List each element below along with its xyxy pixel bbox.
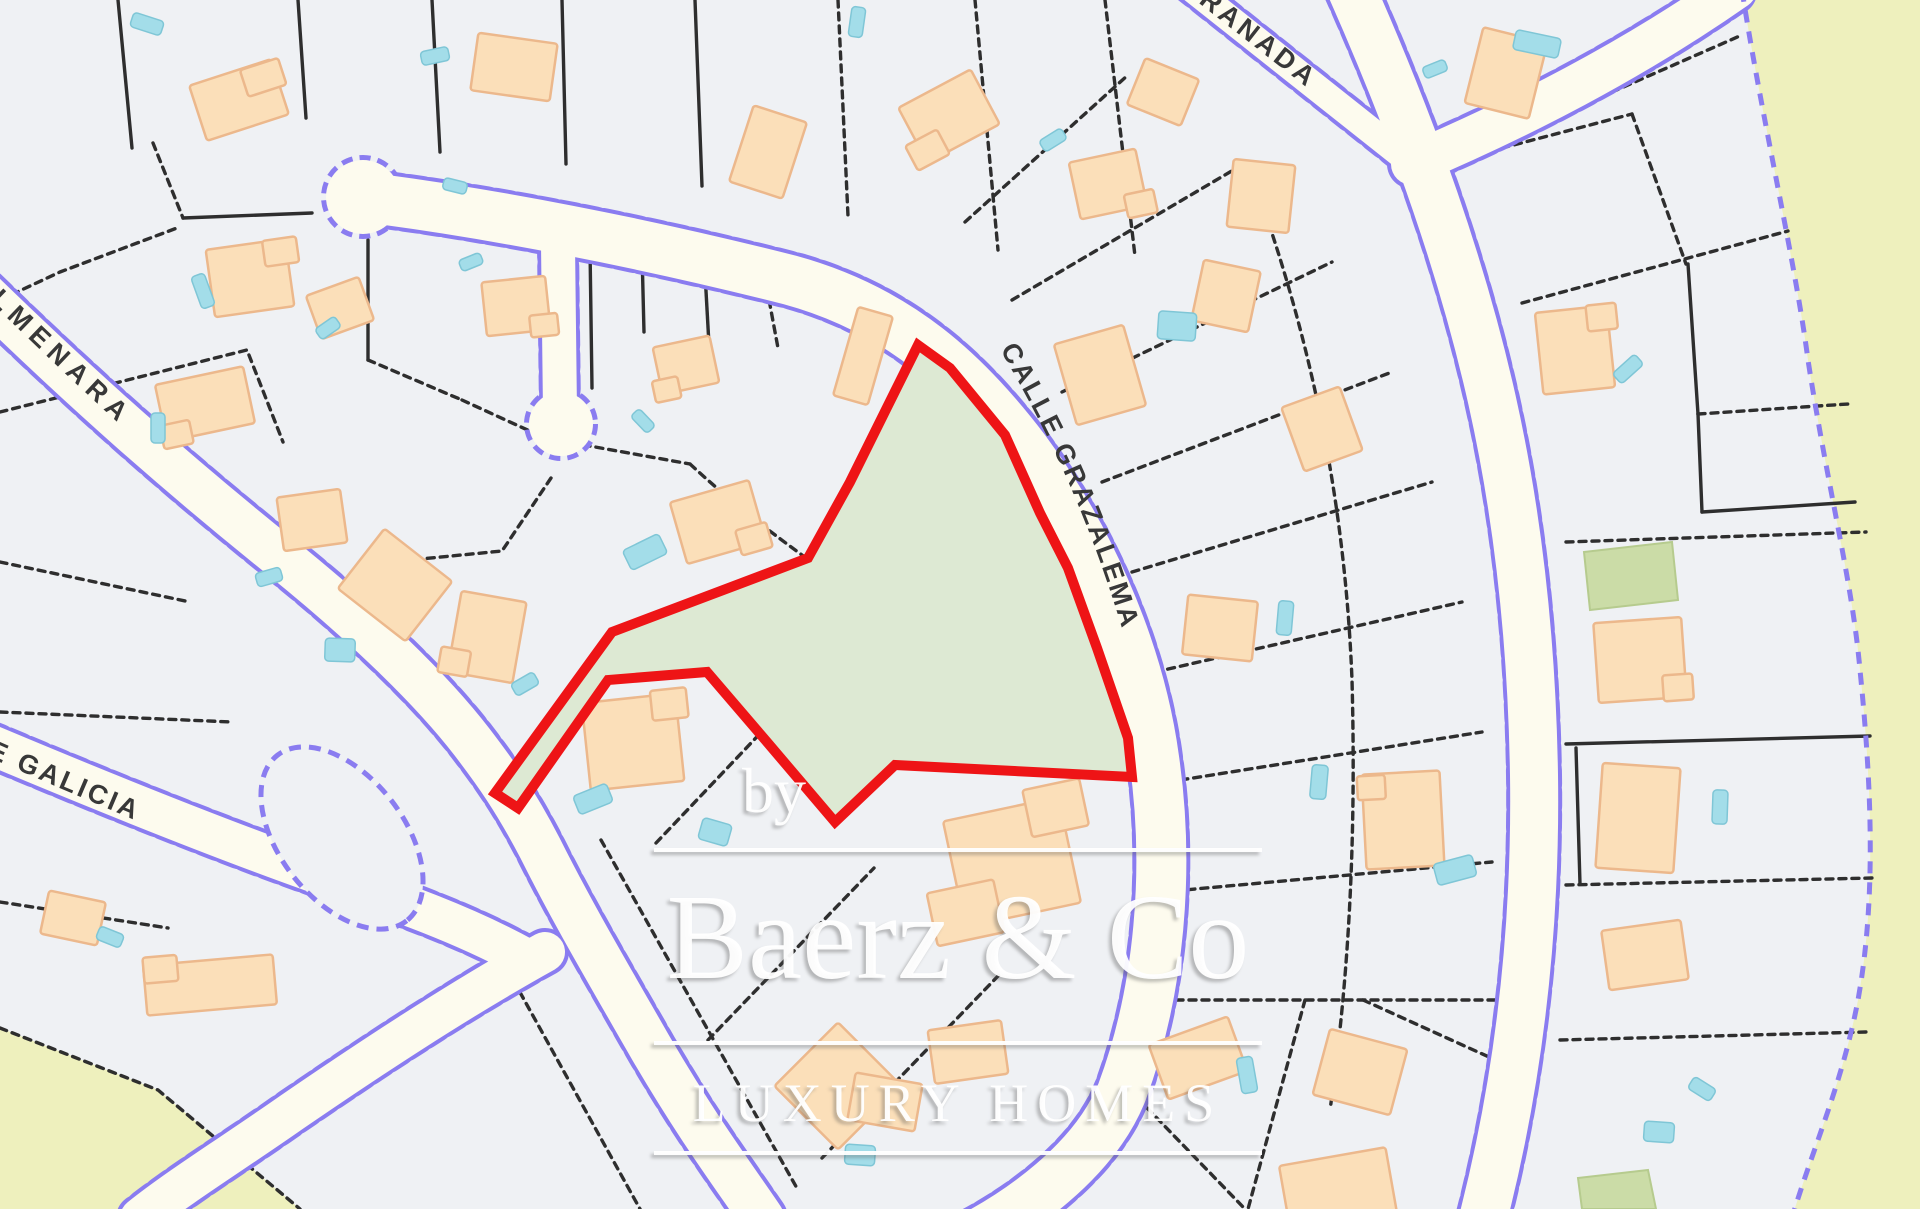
pool-shape xyxy=(573,783,614,815)
parcel-boundary xyxy=(390,478,551,562)
building-shape xyxy=(1191,260,1261,333)
pool-shape xyxy=(1157,311,1197,342)
building xyxy=(142,946,277,1015)
building xyxy=(1191,260,1261,333)
building xyxy=(1279,1147,1399,1209)
building xyxy=(1535,303,1624,395)
building-wing xyxy=(1022,778,1089,837)
pool-shape xyxy=(1310,764,1329,799)
watermark-divider xyxy=(654,1151,1262,1155)
parcel-boundary xyxy=(118,0,132,148)
building-wing xyxy=(262,236,299,266)
building xyxy=(581,687,695,790)
parcel-boundary xyxy=(1132,482,1432,572)
pool-shape xyxy=(1236,1056,1258,1094)
road-surface xyxy=(1349,0,1534,1209)
parcel-boundary xyxy=(153,143,183,218)
parcel-boundary xyxy=(1702,502,1855,512)
watermark-divider xyxy=(654,1041,1262,1045)
pool-shape xyxy=(420,46,450,66)
pool-shape xyxy=(630,408,655,434)
watermark-divider xyxy=(654,848,1262,852)
parcel-boundary xyxy=(1566,532,1866,542)
parcel-boundary xyxy=(1576,748,1580,884)
building xyxy=(645,335,721,403)
building xyxy=(1127,58,1200,126)
building-shape xyxy=(1595,763,1680,873)
pool-shape xyxy=(458,252,484,272)
pool-shape xyxy=(1643,1121,1674,1143)
parcel-boundary xyxy=(1247,162,1353,1110)
pool-shape xyxy=(1712,790,1728,825)
pool-shape xyxy=(1612,354,1644,384)
parcel-boundary xyxy=(838,0,848,216)
building-shape xyxy=(1054,325,1146,426)
green-parcel xyxy=(1578,1170,1656,1209)
road-surface xyxy=(1412,0,1736,164)
parcel-boundary xyxy=(1698,414,1702,512)
building-shape xyxy=(1127,58,1200,126)
pool-shape xyxy=(1422,59,1449,79)
building-shape xyxy=(1227,159,1296,233)
culdesac-surface xyxy=(326,160,400,234)
building xyxy=(1054,325,1146,426)
parcel-boundary xyxy=(590,248,592,388)
parcel-boundary xyxy=(0,562,190,602)
pool-shape xyxy=(151,413,165,443)
parcel-boundary xyxy=(562,0,566,164)
pool-shape xyxy=(698,817,733,846)
map-page: CALLE GRAZALEMAGRANADAALMENARAE GALICIA … xyxy=(0,0,1920,1209)
building xyxy=(470,33,557,102)
building xyxy=(670,479,773,571)
culdesac-surface xyxy=(529,392,593,456)
pool-shape xyxy=(1276,600,1294,635)
pool-shape xyxy=(95,926,124,949)
building xyxy=(1593,617,1694,706)
building-shape xyxy=(470,33,557,102)
building xyxy=(277,489,348,551)
building-shape xyxy=(1182,595,1258,662)
parcel-boundary xyxy=(0,712,232,722)
parcel-boundary xyxy=(1566,878,1872,885)
building-shape xyxy=(1313,1029,1408,1115)
parcel-boundary xyxy=(432,0,440,152)
map-canvas[interactable]: CALLE GRAZALEMAGRANADAALMENARAE GALICIA … xyxy=(0,0,1920,1209)
building-wing xyxy=(1585,303,1618,332)
building-shape xyxy=(277,489,348,551)
building-wing xyxy=(529,313,559,338)
watermark-by: by xyxy=(742,755,806,826)
pool-shape xyxy=(1039,128,1068,153)
building xyxy=(1182,595,1258,662)
building xyxy=(1069,147,1158,229)
pool-shape xyxy=(325,638,356,662)
parcel-boundary xyxy=(1566,736,1870,744)
building-wing xyxy=(142,955,178,984)
building-wing xyxy=(650,687,689,721)
pool-shape xyxy=(622,533,668,570)
building xyxy=(1601,920,1689,991)
parcel-boundary xyxy=(695,0,702,186)
building xyxy=(206,236,306,317)
building xyxy=(151,366,256,449)
building-wing xyxy=(1124,189,1158,219)
parcel-boundary xyxy=(1522,231,1788,303)
building xyxy=(729,105,807,198)
building-shape xyxy=(1601,920,1689,991)
building-shape xyxy=(1279,1147,1399,1209)
building-wing xyxy=(1662,673,1694,701)
pool-shape xyxy=(1687,1076,1716,1102)
building xyxy=(1357,771,1445,870)
building-shape xyxy=(1281,386,1363,471)
parcel-boundary xyxy=(1632,114,1686,264)
offmap-area xyxy=(1742,0,1920,1209)
parcel-boundary xyxy=(368,360,462,400)
parcel-boundary xyxy=(183,213,312,218)
building xyxy=(437,589,526,685)
building-wing xyxy=(652,376,682,403)
green-parcel xyxy=(1584,542,1678,610)
building xyxy=(1595,763,1680,873)
parcel-boundary xyxy=(298,0,306,118)
building xyxy=(1313,1029,1408,1115)
building xyxy=(1281,386,1363,471)
watermark-tagline: LUXURY HOMES xyxy=(693,1073,1224,1133)
pool-shape xyxy=(129,12,164,36)
pool-shape xyxy=(848,6,866,38)
building-wing xyxy=(1357,775,1386,800)
building-shape xyxy=(729,105,807,198)
watermark-brand: Baerz & Co xyxy=(667,870,1250,1005)
building-wing xyxy=(437,646,471,677)
parcel-boundary xyxy=(1560,1032,1866,1040)
building xyxy=(189,57,295,141)
parcel-boundary xyxy=(1688,264,1698,414)
parcel-boundary xyxy=(0,228,177,300)
building xyxy=(1227,159,1296,233)
